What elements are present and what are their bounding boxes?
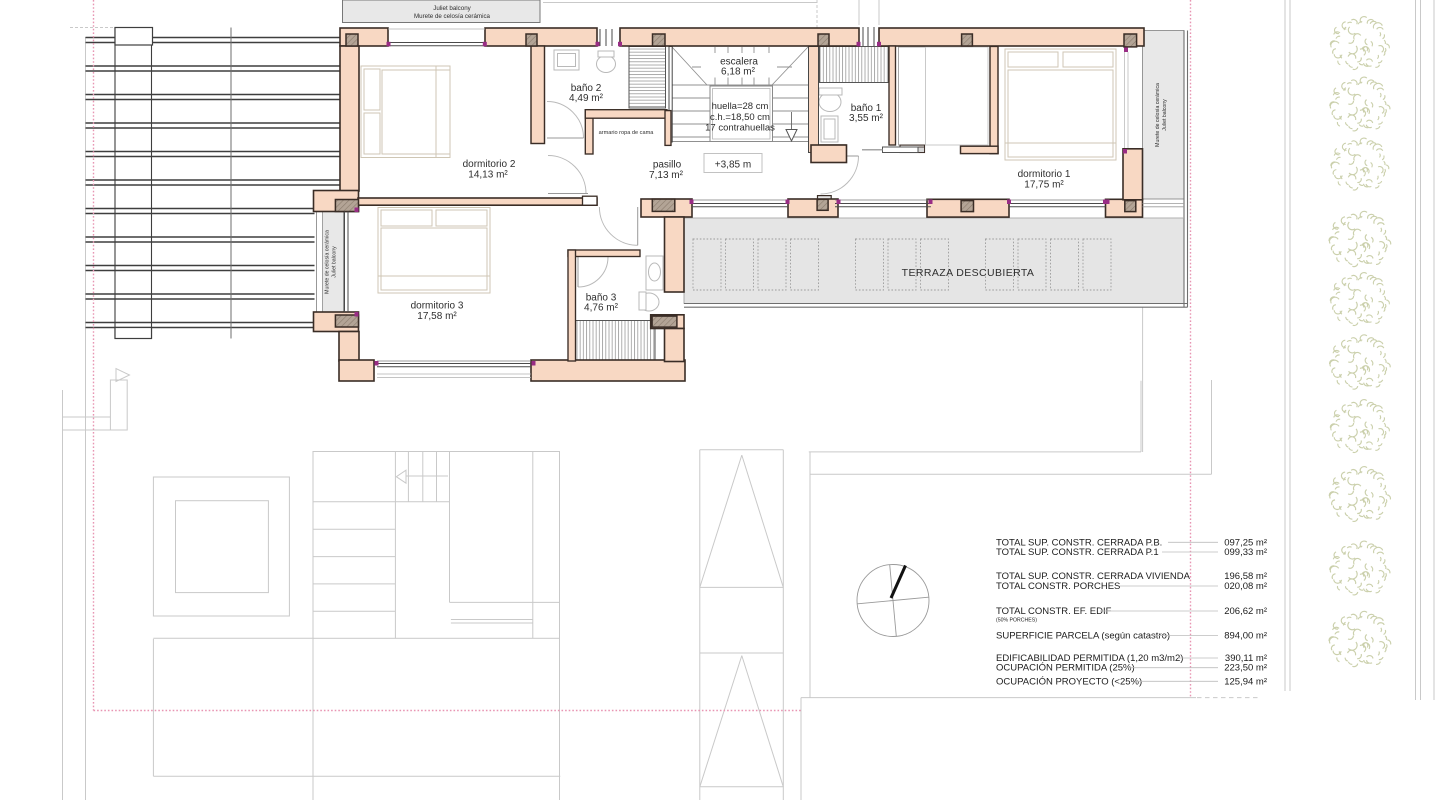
svg-text:armario ropa de cama: armario ropa de cama <box>599 130 655 136</box>
svg-text:TOTAL CONSTR. PORCHES: TOTAL CONSTR. PORCHES <box>996 581 1120 592</box>
svg-text:020,08 m²: 020,08 m² <box>1224 581 1267 592</box>
svg-text:dormitorio 1: dormitorio 1 <box>1018 169 1071 180</box>
svg-text:TERRAZA DESCUBIERTA: TERRAZA DESCUBIERTA <box>902 267 1035 279</box>
svg-text:4,49 m²: 4,49 m² <box>569 93 604 104</box>
svg-text:Juliet balcony: Juliet balcony <box>433 5 471 12</box>
svg-text:OCUPACIÓN PROYECTO (<25%): OCUPACIÓN PROYECTO (<25%) <box>996 676 1142 687</box>
svg-text:huella=28 cm: huella=28 cm <box>712 101 769 112</box>
svg-text:(50% PORCHES): (50% PORCHES) <box>996 618 1037 624</box>
svg-text:125,94 m²: 125,94 m² <box>1224 676 1267 687</box>
svg-text:c.h.=18,50 cm: c.h.=18,50 cm <box>710 112 770 123</box>
svg-text:17,75 m²: 17,75 m² <box>1024 180 1064 191</box>
svg-text:223,50 m²: 223,50 m² <box>1224 663 1267 674</box>
svg-text:Murete de celosía cerámica: Murete de celosía cerámica <box>1155 83 1161 147</box>
svg-text:Murete de celosía cerámica: Murete de celosía cerámica <box>325 230 331 294</box>
svg-text:TOTAL CONSTR. EF. EDIF: TOTAL CONSTR. EF. EDIF <box>996 606 1112 617</box>
svg-text:14,13 m²: 14,13 m² <box>468 170 508 181</box>
svg-text:TOTAL SUP. CONSTR. CERRADA P.1: TOTAL SUP. CONSTR. CERRADA P.1 <box>996 547 1159 558</box>
svg-text:7,13 m²: 7,13 m² <box>649 170 684 181</box>
svg-text:6,18 m²: 6,18 m² <box>721 67 756 78</box>
svg-text:Juliet balcony: Juliet balcony <box>1162 99 1168 131</box>
svg-text:4,76 m²: 4,76 m² <box>584 303 619 314</box>
svg-text:pasillo: pasillo <box>653 159 682 170</box>
svg-text:Juliet balcony: Juliet balcony <box>332 246 338 278</box>
svg-text:+3,85 m: +3,85 m <box>715 160 751 171</box>
svg-text:894,00 m²: 894,00 m² <box>1224 631 1267 642</box>
svg-text:3,55 m²: 3,55 m² <box>849 113 884 124</box>
svg-text:206,62 m²: 206,62 m² <box>1224 606 1267 617</box>
svg-text:17 contrahuellas: 17 contrahuellas <box>705 123 775 134</box>
svg-text:099,33 m²: 099,33 m² <box>1224 547 1267 558</box>
svg-text:dormitorio 3: dormitorio 3 <box>411 301 464 312</box>
svg-text:dormitorio 2: dormitorio 2 <box>463 159 516 170</box>
svg-text:SUPERFICIE PARCELA (según cata: SUPERFICIE PARCELA (según catastro) <box>996 631 1170 642</box>
svg-text:Murete de celosía cerámica: Murete de celosía cerámica <box>414 13 491 20</box>
svg-text:OCUPACIÓN PERMITIDA (25%): OCUPACIÓN PERMITIDA (25%) <box>996 663 1135 674</box>
svg-text:17,58 m²: 17,58 m² <box>417 311 457 322</box>
